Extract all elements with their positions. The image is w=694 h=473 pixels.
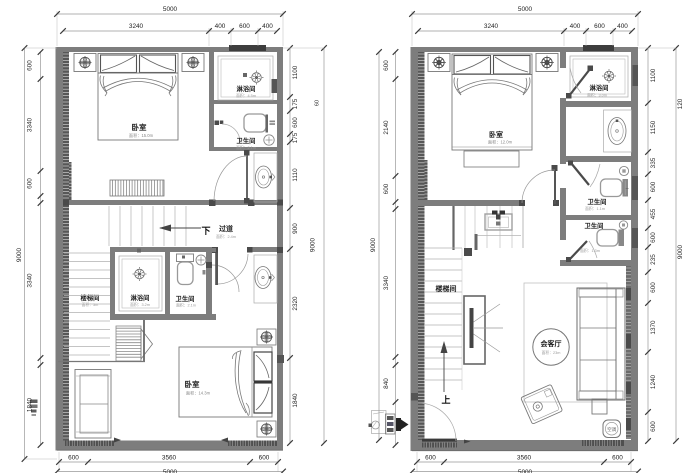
- svg-text:3560: 3560: [517, 455, 532, 462]
- svg-text:3240: 3240: [484, 23, 499, 30]
- svg-text:面积：2.4m: 面积：2.4m: [216, 234, 236, 239]
- svg-text:淋浴间: 淋浴间: [590, 83, 609, 92]
- svg-text:3240: 3240: [129, 23, 144, 30]
- svg-text:600: 600: [425, 455, 436, 462]
- svg-text:面积：2.1m: 面积：2.1m: [236, 145, 256, 150]
- svg-text:2140: 2140: [383, 120, 390, 135]
- svg-text:空调: 空调: [607, 426, 616, 433]
- svg-text:卧室: 卧室: [489, 130, 503, 139]
- svg-text:卧室: 卧室: [185, 379, 200, 389]
- svg-text:600: 600: [27, 60, 34, 71]
- svg-text:过道: 过道: [219, 224, 233, 233]
- svg-text:455: 455: [650, 208, 657, 219]
- svg-text:400: 400: [570, 23, 581, 30]
- svg-text:楼梯间: 楼梯间: [436, 284, 457, 293]
- svg-text:会客厅: 会客厅: [541, 339, 562, 348]
- svg-text:335: 335: [650, 157, 657, 168]
- svg-text:3340: 3340: [383, 275, 390, 290]
- svg-text:卧室: 卧室: [132, 122, 147, 132]
- svg-text:卫生间: 卫生间: [588, 197, 607, 206]
- svg-text:400: 400: [617, 23, 628, 30]
- svg-text:面积：14.3m: 面积：14.3m: [186, 390, 211, 397]
- svg-text:卫生间: 卫生间: [176, 294, 195, 303]
- svg-text:下: 下: [201, 226, 210, 236]
- svg-text:600: 600: [650, 421, 657, 432]
- svg-text:600: 600: [650, 282, 657, 293]
- svg-text:600: 600: [612, 455, 623, 462]
- svg-text:面积：3.2m: 面积：3.2m: [130, 302, 150, 307]
- svg-text:60: 60: [315, 100, 321, 106]
- svg-text:5000: 5000: [518, 469, 533, 473]
- svg-text:3560: 3560: [162, 455, 177, 462]
- svg-text:600: 600: [650, 181, 657, 192]
- svg-text:5000: 5000: [163, 469, 178, 473]
- svg-text:9000: 9000: [677, 244, 684, 259]
- svg-text:9000: 9000: [370, 237, 377, 252]
- svg-text:淋浴间: 淋浴间: [131, 293, 150, 302]
- svg-text:面积：1.1m: 面积：1.1m: [585, 206, 605, 211]
- svg-text:175: 175: [292, 98, 299, 109]
- svg-text:面积：2.1m: 面积：2.1m: [176, 303, 196, 308]
- svg-text:面积：3m: 面积：3m: [82, 302, 99, 307]
- svg-text:1110: 1110: [292, 168, 299, 182]
- svg-text:卫生间: 卫生间: [237, 136, 256, 145]
- svg-text:600: 600: [68, 455, 79, 462]
- svg-text:1840: 1840: [27, 397, 34, 412]
- svg-text:5000: 5000: [163, 6, 178, 13]
- svg-text:上: 上: [441, 394, 450, 405]
- svg-text:175: 175: [292, 132, 299, 143]
- svg-text:400: 400: [215, 23, 226, 30]
- svg-text:1100: 1100: [650, 68, 657, 82]
- svg-text:5000: 5000: [518, 6, 533, 13]
- svg-text:卫生间: 卫生间: [585, 221, 604, 230]
- svg-text:3340: 3340: [27, 273, 34, 288]
- svg-text:600: 600: [383, 183, 390, 194]
- svg-text:600: 600: [594, 23, 605, 30]
- svg-text:900: 900: [292, 223, 299, 234]
- svg-text:840: 840: [383, 378, 390, 389]
- svg-text:2320: 2320: [292, 296, 299, 311]
- svg-text:600: 600: [383, 60, 390, 71]
- svg-text:面积：15.0m: 面积：15.0m: [129, 132, 154, 139]
- svg-text:1150: 1150: [650, 120, 657, 134]
- svg-text:1840: 1840: [292, 393, 299, 408]
- svg-text:面积：12.0m: 面积：12.0m: [488, 139, 513, 146]
- svg-text:600: 600: [292, 117, 299, 128]
- svg-text:3340: 3340: [27, 117, 34, 132]
- svg-text:1370: 1370: [650, 320, 657, 335]
- svg-text:楼梯间: 楼梯间: [81, 293, 100, 302]
- svg-text:120: 120: [677, 98, 684, 109]
- svg-text:600: 600: [239, 23, 250, 30]
- svg-text:600: 600: [259, 455, 270, 462]
- svg-text:面积：23m: 面积：23m: [542, 350, 561, 355]
- svg-text:600: 600: [27, 178, 34, 189]
- svg-text:面积：1.3m: 面积：1.3m: [580, 248, 600, 253]
- svg-text:1240: 1240: [650, 374, 657, 389]
- svg-text:235: 235: [650, 254, 657, 265]
- svg-text:400: 400: [262, 23, 273, 30]
- svg-text:600: 600: [650, 232, 657, 243]
- svg-text:面积：4.5m: 面积：4.5m: [236, 93, 256, 98]
- svg-text:面积：3.0m: 面积：3.0m: [587, 93, 607, 98]
- svg-text:9000: 9000: [16, 247, 23, 262]
- svg-text:1100: 1100: [292, 65, 299, 79]
- svg-text:9000: 9000: [310, 237, 317, 252]
- svg-text:淋浴间: 淋浴间: [237, 84, 256, 93]
